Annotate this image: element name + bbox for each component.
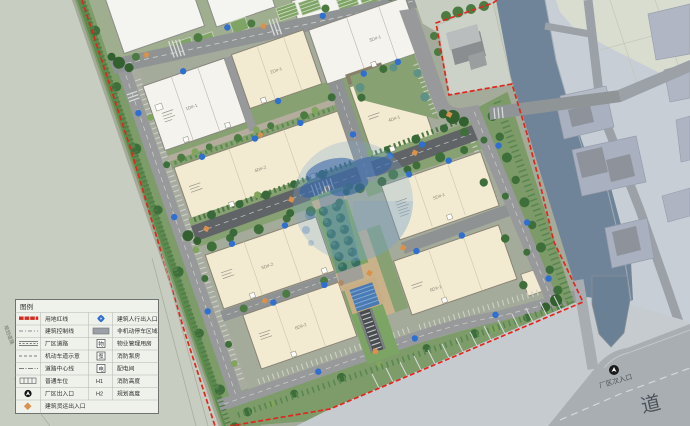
svg-text:物业管理用房: 物业管理用房	[117, 340, 152, 348]
svg-text:物: 物	[98, 340, 104, 348]
svg-text:机动车道示意: 机动车道示意	[45, 352, 80, 360]
svg-text:厂区道路: 厂区道路	[45, 340, 68, 348]
svg-text:配电间: 配电间	[117, 365, 135, 373]
svg-text:图例: 图例	[20, 302, 33, 311]
svg-text:道路中心线: 道路中心线	[45, 365, 74, 373]
svg-text:建筑货运出入口: 建筑货运出入口	[45, 402, 86, 410]
svg-text:消防高度: 消防高度	[117, 377, 140, 385]
svg-text:泵: 泵	[98, 354, 104, 361]
svg-text:普通车位: 普通车位	[45, 377, 68, 385]
svg-text:H2: H2	[96, 392, 103, 398]
svg-text:电: 电	[98, 365, 104, 373]
svg-text:厂区出入口: 厂区出入口	[45, 390, 74, 398]
svg-text:建筑人行出入口: 建筑人行出入口	[117, 315, 158, 323]
svg-text:非机动停车区域: 非机动停车区域	[117, 327, 158, 335]
svg-text:规划高度: 规划高度	[117, 390, 140, 398]
svg-text:建筑控制线: 建筑控制线	[45, 327, 74, 335]
svg-text:H1: H1	[96, 379, 103, 385]
svg-text:消防泵房: 消防泵房	[117, 352, 140, 360]
svg-text:用地红线: 用地红线	[45, 315, 68, 323]
